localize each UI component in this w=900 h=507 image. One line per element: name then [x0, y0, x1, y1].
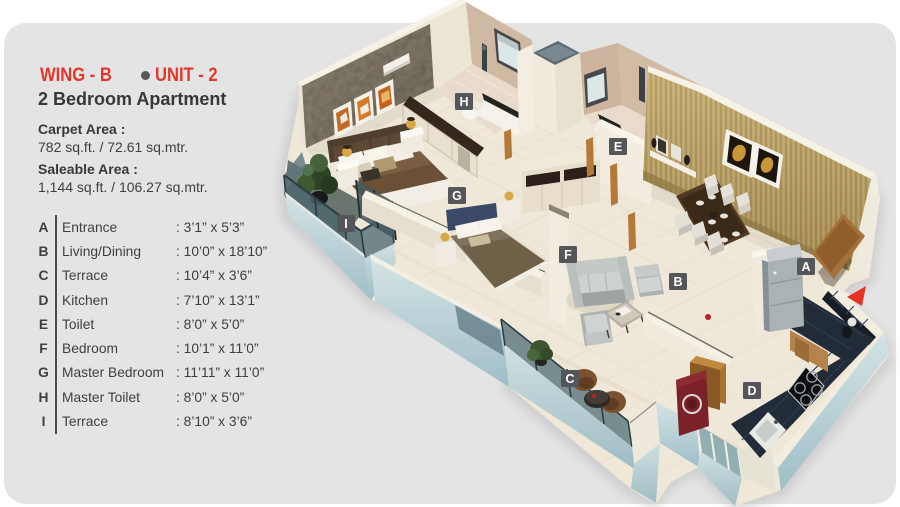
svg-text:D: D — [747, 384, 756, 398]
svg-text:G: G — [452, 189, 462, 203]
svg-text:H: H — [459, 95, 468, 109]
svg-text:E: E — [614, 140, 622, 154]
svg-text:C: C — [565, 372, 574, 386]
svg-text:A: A — [801, 260, 810, 274]
svg-text:I: I — [344, 217, 347, 231]
svg-text:F: F — [564, 248, 572, 262]
svg-text:B: B — [673, 275, 682, 289]
